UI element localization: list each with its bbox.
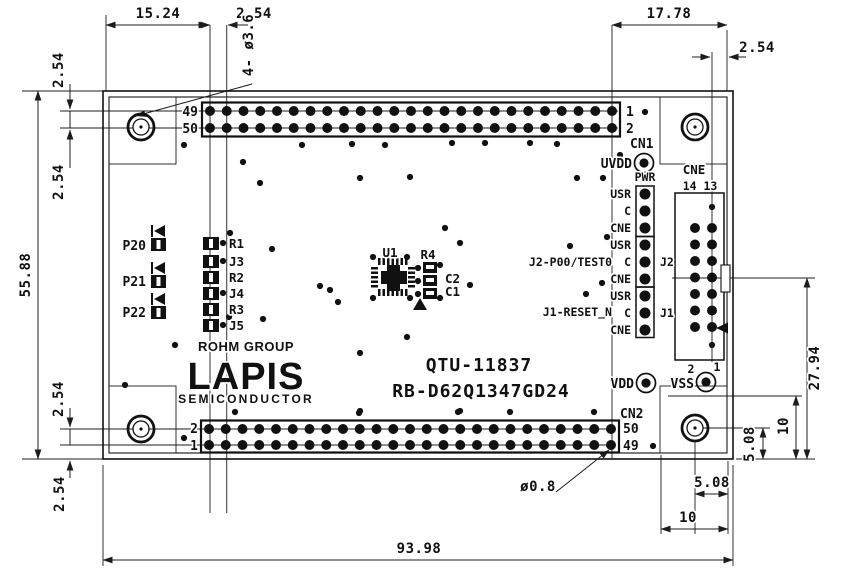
r2-label: R2 <box>229 270 244 285</box>
j2-signal-label: J2-P00/TEST0 <box>529 255 612 269</box>
connector-pin <box>556 440 566 450</box>
connector-pin <box>607 123 617 133</box>
connector-pin <box>489 424 499 434</box>
via-dot <box>604 234 610 240</box>
board-title-line1: QTU-11837 <box>426 355 533 376</box>
j3-label: J3 <box>229 254 244 269</box>
connector-pin <box>422 440 432 450</box>
cne-pin <box>707 273 717 283</box>
connector-pin <box>490 106 500 116</box>
connector-pin <box>322 106 332 116</box>
cne-pin <box>707 322 717 332</box>
via-dot <box>415 291 421 297</box>
j2-label: J2 <box>660 255 674 269</box>
cne-pin <box>707 223 717 233</box>
jumper-pin <box>640 291 651 302</box>
via-dot <box>327 287 333 293</box>
r1-label: R1 <box>229 236 244 251</box>
jumper-pin <box>640 325 651 336</box>
via-dot <box>442 225 448 231</box>
connector-pin <box>255 106 265 116</box>
connector-pin <box>522 440 532 450</box>
connector-pin <box>455 424 465 434</box>
connector-pin <box>272 123 282 133</box>
connector-pin <box>589 424 599 434</box>
jumper-row-label: C <box>624 255 631 269</box>
dim-row2-to-row1: 2.54 <box>51 381 67 417</box>
connector-pin <box>372 440 382 450</box>
connector-pin <box>322 123 332 133</box>
via-dot <box>370 295 376 301</box>
connector-pin <box>539 424 549 434</box>
jumper-row-label: USR <box>610 187 631 201</box>
jumper-pin <box>640 189 651 200</box>
connector-pin <box>204 440 214 450</box>
connector-pin <box>456 106 466 116</box>
connector-pin <box>305 440 315 450</box>
connector-pin <box>222 123 232 133</box>
note-pin-hole-dia: ø0.8 <box>520 479 556 495</box>
connector-pin <box>405 424 415 434</box>
dim-cn1-to-edge: 17.78 <box>647 6 692 22</box>
via-dot <box>317 283 323 289</box>
connector-pin <box>440 106 450 116</box>
connector-pin <box>472 440 482 450</box>
j5-label: J5 <box>229 318 244 333</box>
via-dot <box>232 409 238 415</box>
semiconductor-logo-text: SEMICONDUCTOR <box>178 392 314 406</box>
cn2-pin49-label: 49 <box>623 439 639 454</box>
connector-pin <box>405 440 415 450</box>
part-r1 <box>203 237 219 250</box>
connector-pin <box>523 123 533 133</box>
via-dot <box>357 175 363 181</box>
dim-edge-to-row49: 2.54 <box>51 52 67 88</box>
cne-pin <box>690 289 700 299</box>
via-dot <box>181 142 187 148</box>
via-dot <box>357 408 363 414</box>
via-dot <box>449 140 455 146</box>
dim-cne-row-to-edge: 27.94 <box>807 346 823 391</box>
cn2-pin2-label: 2 <box>190 422 198 437</box>
connector-pin <box>490 123 500 133</box>
connector-pin <box>422 424 432 434</box>
jumper-row-label: CNE <box>610 272 631 286</box>
cne-pin <box>690 273 700 283</box>
cn1-name: CN1 <box>630 137 654 152</box>
connector-pin <box>373 106 383 116</box>
connector-pin <box>238 440 248 450</box>
board-title-line2: RB-D62Q1347GD24 <box>392 381 570 402</box>
connector-pin <box>238 424 248 434</box>
vdd-label: VDD <box>611 377 635 392</box>
connector-pin <box>221 424 231 434</box>
via-dot <box>437 295 443 301</box>
cne-pin <box>690 223 700 233</box>
connector-pin <box>522 424 532 434</box>
connector-pin <box>606 440 616 450</box>
via-dot <box>299 142 305 148</box>
jumper-row-label: CNE <box>610 323 631 337</box>
dim-corner-v: 10 <box>776 417 792 435</box>
via-dot <box>257 180 263 186</box>
via-dot <box>220 290 226 296</box>
jumper-row-label: C <box>624 204 631 218</box>
cne-pin <box>690 240 700 250</box>
via-dot <box>260 316 266 322</box>
connector-pin <box>239 123 249 133</box>
via-dot <box>335 299 341 305</box>
connector-pin <box>607 106 617 116</box>
jumper-pin <box>640 257 651 268</box>
connector-pin <box>289 106 299 116</box>
connector-pin <box>221 440 231 450</box>
connector-pin <box>388 424 398 434</box>
cne-pin <box>690 256 700 266</box>
connector-pin <box>222 106 232 116</box>
vss-label: VSS <box>671 377 695 392</box>
connector-pin <box>440 123 450 133</box>
via-dot <box>172 342 178 348</box>
vss-pin1-label: 1 <box>714 360 721 374</box>
connector-pin <box>355 440 365 450</box>
cne-key-notch <box>721 265 730 292</box>
connector-pin <box>573 440 583 450</box>
connector-pin <box>338 424 348 434</box>
connector-pin <box>356 123 366 133</box>
via-dot <box>415 278 421 284</box>
via-dot <box>709 204 715 210</box>
dim-corner-h: 10 <box>679 510 697 526</box>
connector-pin <box>339 106 349 116</box>
via-dot <box>404 334 410 340</box>
connector-pin <box>456 123 466 133</box>
connector-pin <box>272 106 282 116</box>
connector-pin <box>338 440 348 450</box>
dim-hole-h: 5.08 <box>694 475 730 491</box>
jumper-pin <box>640 274 651 285</box>
connector-pin <box>507 106 517 116</box>
part-j5 <box>203 319 219 332</box>
connector-pin <box>574 106 584 116</box>
via-dot <box>642 109 648 115</box>
cne-pin <box>707 240 717 250</box>
connector-pin <box>557 106 567 116</box>
dim-row49-to-row50: 2.54 <box>51 164 67 200</box>
via-dot <box>404 254 410 260</box>
connector-pin <box>271 424 281 434</box>
connector-pin <box>255 123 265 133</box>
connector-pin <box>239 106 249 116</box>
via-dot <box>220 240 226 246</box>
connector-pin <box>574 123 584 133</box>
connector-pin <box>523 106 533 116</box>
cne-name: CNE <box>683 162 706 177</box>
cne-pin <box>707 256 717 266</box>
cn2-name: CN2 <box>620 407 643 422</box>
connector-pin <box>472 424 482 434</box>
jumper-pin <box>640 240 651 251</box>
p22-label: P22 <box>123 306 146 321</box>
via-dot <box>407 295 413 301</box>
uvdd-label: UVDD <box>601 157 632 172</box>
part-j3 <box>203 255 219 268</box>
connector-pin <box>540 123 550 133</box>
rohm-group-logo-text: ROHM GROUP <box>198 339 294 354</box>
connector-pin <box>388 440 398 450</box>
connector-pin <box>406 123 416 133</box>
connector-pin <box>423 106 433 116</box>
dim-board-height: 55.88 <box>18 253 34 298</box>
connector-pin <box>289 123 299 133</box>
via-dot <box>181 435 187 441</box>
dim-row1-to-edge: 2.54 <box>52 476 68 512</box>
via-dot <box>600 175 606 181</box>
connector-pin <box>589 440 599 450</box>
connector-pin <box>389 123 399 133</box>
connector-pin <box>557 123 567 133</box>
connector-pin <box>539 440 549 450</box>
r4-label: R4 <box>420 247 435 262</box>
connector-pin <box>540 106 550 116</box>
via-dot <box>591 409 597 415</box>
jumper-row-label: USR <box>610 238 631 252</box>
jumper-pins <box>640 189 651 336</box>
cn1-pin50-label: 50 <box>182 122 198 137</box>
connector-pin <box>321 440 331 450</box>
dim-cne-to-edge: 2.54 <box>739 40 775 56</box>
via-dot <box>407 174 413 180</box>
connector-pin <box>254 424 264 434</box>
jumper-pin <box>640 206 651 217</box>
connector-pin <box>356 106 366 116</box>
via-dot <box>507 409 513 415</box>
connector-pin <box>590 123 600 133</box>
via-dot <box>122 382 128 388</box>
via-dot <box>457 408 463 414</box>
connector-pin <box>271 440 281 450</box>
via-dot <box>599 280 605 286</box>
via-dot <box>240 159 246 165</box>
p20-label: P20 <box>123 239 147 254</box>
connector-pin <box>439 440 449 450</box>
cne-pin <box>707 289 717 299</box>
connector-pin <box>355 424 365 434</box>
pwr-label: PWR <box>635 170 656 184</box>
via-dot <box>527 140 533 146</box>
u1-label: U1 <box>382 245 397 260</box>
connector-pin <box>556 424 566 434</box>
jumper-row-label: CNE <box>610 221 631 235</box>
r3-label: R3 <box>229 302 244 317</box>
pcb-dimension-drawing: 15.24 2.54 17.78 2.54 55.88 2.54 2.54 2.… <box>0 0 850 583</box>
connector-pin <box>306 106 316 116</box>
jumper-pin <box>640 223 651 234</box>
cn1-pin1-label: 1 <box>626 105 634 120</box>
connector-pin <box>506 424 516 434</box>
via-dot <box>357 350 363 356</box>
connector-pin <box>489 440 499 450</box>
connector-pin <box>606 424 616 434</box>
connector-pin <box>305 424 315 434</box>
cn2-pin50-label: 50 <box>623 422 639 437</box>
connector-pin <box>204 424 214 434</box>
connector-pin <box>423 123 433 133</box>
via-dot <box>269 246 275 252</box>
c1-label: C1 <box>445 284 460 299</box>
via-dot <box>574 175 580 181</box>
jumper-pin <box>640 308 651 319</box>
connector-pin <box>389 106 399 116</box>
via-dot <box>220 322 226 328</box>
connector-pin <box>473 123 483 133</box>
j1-label: J1 <box>660 306 674 320</box>
cn2-pin1-label: 1 <box>190 439 198 454</box>
connector-pin <box>254 440 264 450</box>
cne-pin-numbers: 14 13 <box>683 179 718 193</box>
j4-label: J4 <box>229 286 244 301</box>
connector-pin <box>288 424 298 434</box>
connector-pin <box>507 123 517 133</box>
drawing-canvas: 15.24 2.54 17.78 2.54 55.88 2.54 2.54 2.… <box>0 0 850 583</box>
cne-pin <box>690 322 700 332</box>
part-j4 <box>203 287 219 300</box>
jumper-row-label: USR <box>610 289 631 303</box>
dim-hole-v: 5.08 <box>742 426 758 462</box>
vss-pin2-label: 2 <box>688 362 695 376</box>
connector-pin <box>506 440 516 450</box>
connector-pin <box>373 123 383 133</box>
cn1-pin49-label: 49 <box>182 105 198 120</box>
cne-pin <box>707 306 717 316</box>
connector-pin <box>372 424 382 434</box>
part-r3 <box>203 303 219 316</box>
connector-pin <box>288 440 298 450</box>
via-dot <box>467 282 473 288</box>
via-dot <box>382 142 388 148</box>
connector-pin <box>339 123 349 133</box>
cne-pin <box>690 306 700 316</box>
dim-board-width: 93.98 <box>397 541 442 557</box>
via-dot <box>583 291 589 297</box>
via-dot <box>437 262 443 268</box>
part-r2 <box>203 271 219 284</box>
note-mount-holes: 4- ø3.6 <box>241 14 257 77</box>
connector-pin <box>455 440 465 450</box>
via-dot <box>370 254 376 260</box>
connector-pin <box>321 424 331 434</box>
connector-pin <box>590 106 600 116</box>
via-dot <box>482 140 488 146</box>
j1-signal-label: J1-RESET_N <box>543 305 612 320</box>
via-dot <box>554 141 560 147</box>
via-dot <box>567 243 573 249</box>
connector-pin <box>205 106 215 116</box>
connector-pin <box>473 106 483 116</box>
via-dot <box>349 141 355 147</box>
connector-pin <box>573 424 583 434</box>
connector-pin <box>306 123 316 133</box>
dim-edge-to-cn1: 15.24 <box>136 6 181 22</box>
connector-pin <box>205 123 215 133</box>
via-dot <box>415 265 421 271</box>
jumper-row-label: C <box>624 306 631 320</box>
cn1-pin2-label: 2 <box>626 122 634 137</box>
via-dot <box>709 342 715 348</box>
connector-pin <box>439 424 449 434</box>
via-dot <box>650 443 656 449</box>
via-dot <box>220 258 226 264</box>
connector-pin <box>406 106 416 116</box>
p21-label: P21 <box>123 275 147 290</box>
via-dot <box>457 240 463 246</box>
